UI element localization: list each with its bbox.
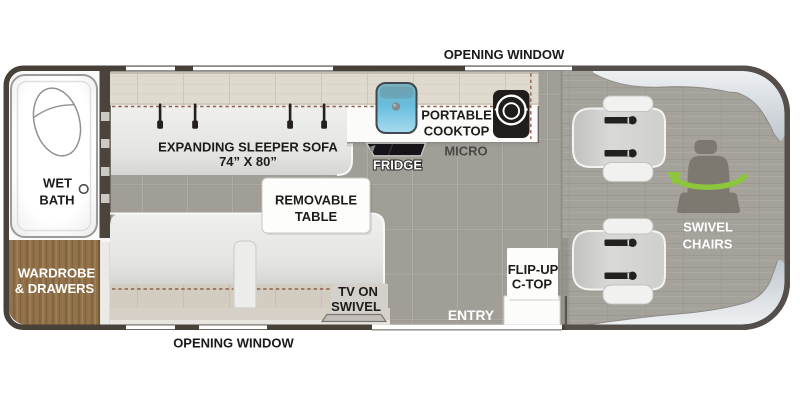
svg-text:TV ON: TV ON — [338, 284, 378, 299]
svg-text:SWIVEL: SWIVEL — [683, 220, 733, 235]
svg-text:OPENING WINDOW: OPENING WINDOW — [173, 336, 294, 351]
svg-text:& DRAWERS: & DRAWERS — [15, 281, 95, 296]
svg-text:CHAIRS: CHAIRS — [683, 237, 733, 252]
svg-text:OPENING WINDOW: OPENING WINDOW — [444, 47, 565, 62]
svg-text:COOKTOP: COOKTOP — [424, 123, 490, 138]
svg-text:FLIP-UP: FLIP-UP — [508, 262, 559, 277]
svg-text:TABLE: TABLE — [295, 209, 338, 224]
svg-text:WARDROBE: WARDROBE — [18, 266, 96, 281]
svg-text:REMOVABLE: REMOVABLE — [275, 193, 357, 208]
svg-text:PORTABLE: PORTABLE — [421, 108, 492, 123]
svg-text:BATH: BATH — [39, 193, 74, 208]
svg-text:SWIVEL: SWIVEL — [331, 299, 381, 314]
svg-text:74” X 80”: 74” X 80” — [219, 154, 277, 169]
svg-text:EXPANDING SLEEPER SOFA: EXPANDING SLEEPER SOFA — [158, 140, 338, 155]
svg-text:C-TOP: C-TOP — [512, 277, 553, 292]
svg-text:MICRO: MICRO — [444, 143, 487, 158]
svg-text:WET: WET — [43, 176, 72, 191]
svg-text:ENTRY: ENTRY — [448, 308, 494, 323]
svg-text:FRIDGE: FRIDGE — [373, 157, 422, 172]
